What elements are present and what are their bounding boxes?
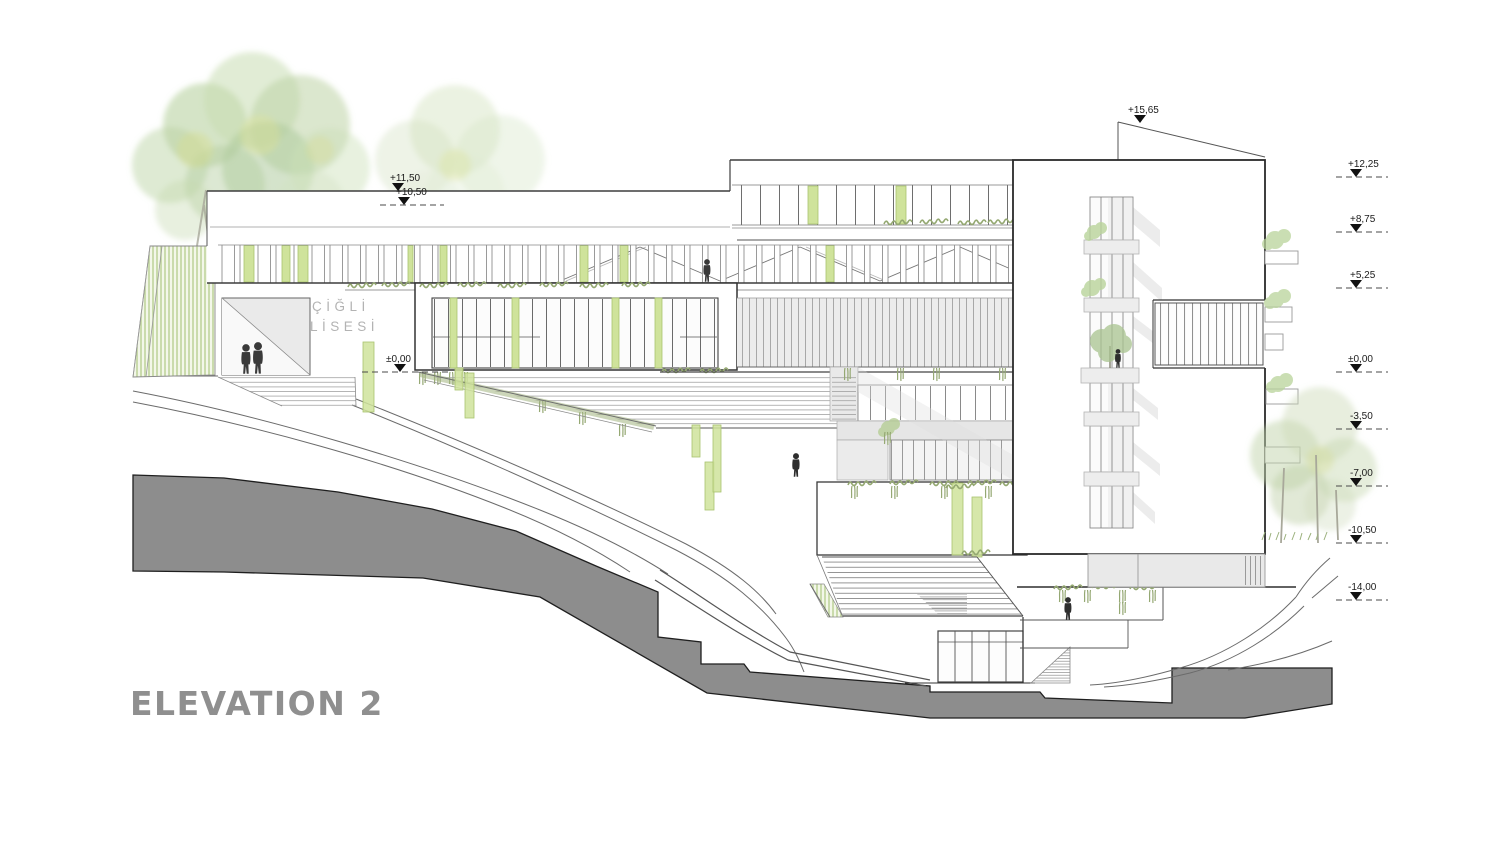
level-marker-label-left-0: +11,50 [390, 173, 421, 184]
level-marker-label-top: +15,65 [1128, 105, 1159, 116]
level-marker-label-mid: ±0,00 [386, 354, 411, 365]
drawing-title: ELEVATION 2 [130, 684, 384, 723]
level-marker-arrow-icon [1350, 224, 1362, 232]
building-sign-line2: LİSESİ [310, 319, 379, 334]
tower-base [1088, 554, 1265, 587]
tower-roof-slope [1118, 122, 1265, 160]
upper-floor-band [730, 160, 1013, 245]
entry-stairs [218, 377, 356, 406]
basement-floor [905, 617, 1070, 683]
mid-bleachers [418, 372, 862, 432]
level-marker-label-right-4: -3,50 [1350, 411, 1373, 422]
level-marker-arrow-icon [1350, 535, 1362, 543]
level-marker-arrow-icon [1134, 115, 1146, 123]
terrace-vines [1060, 590, 1156, 615]
level-marker-label-right-5: -7,00 [1350, 468, 1373, 479]
green-wall [133, 246, 215, 377]
person-silhouette [1064, 597, 1071, 620]
entrance: ÇİĞLİ LİSESİ [222, 298, 379, 375]
level-marker-label-right-3: ±0,00 [1348, 354, 1373, 365]
level-marker-label-right-6: -10,50 [1348, 525, 1377, 536]
level-marker-arrow-icon [1350, 169, 1362, 177]
lower-block [817, 480, 1028, 557]
building-sign-line1: ÇİĞLİ [312, 299, 370, 314]
level-marker-label-right-7: -14,00 [1348, 582, 1377, 593]
person-silhouette [792, 453, 799, 477]
level-marker-label-right-1: +8,75 [1350, 214, 1376, 225]
right-terraces [1017, 584, 1296, 648]
tower [1013, 122, 1267, 587]
green-accent-panel [896, 186, 906, 224]
level-marker-arrow-icon [1350, 592, 1362, 600]
level-marker-label-right-2: +5,25 [1350, 270, 1376, 281]
level-markers-right: +12,25 +8,75 +5,25 ±0,00 -3,50 -7,00 -10… [1336, 159, 1388, 600]
stair-notch [1153, 300, 1267, 368]
level-marker-arrow-icon [394, 364, 406, 372]
middle-glazed-block [415, 283, 737, 370]
tower-window-strip [1081, 197, 1139, 528]
basement-stair [1031, 647, 1070, 683]
green-accent-panel [808, 186, 818, 224]
elevation-drawing-canvas: ÇİĞLİ LİSESİ [0, 0, 1500, 846]
level-marker-label-left-1: +10,50 [396, 187, 427, 198]
level-marker-arrow-icon [1350, 280, 1362, 288]
level-marker-arrow-icon [1350, 364, 1362, 372]
level-marker-label-right-0: +12,25 [1348, 159, 1379, 170]
